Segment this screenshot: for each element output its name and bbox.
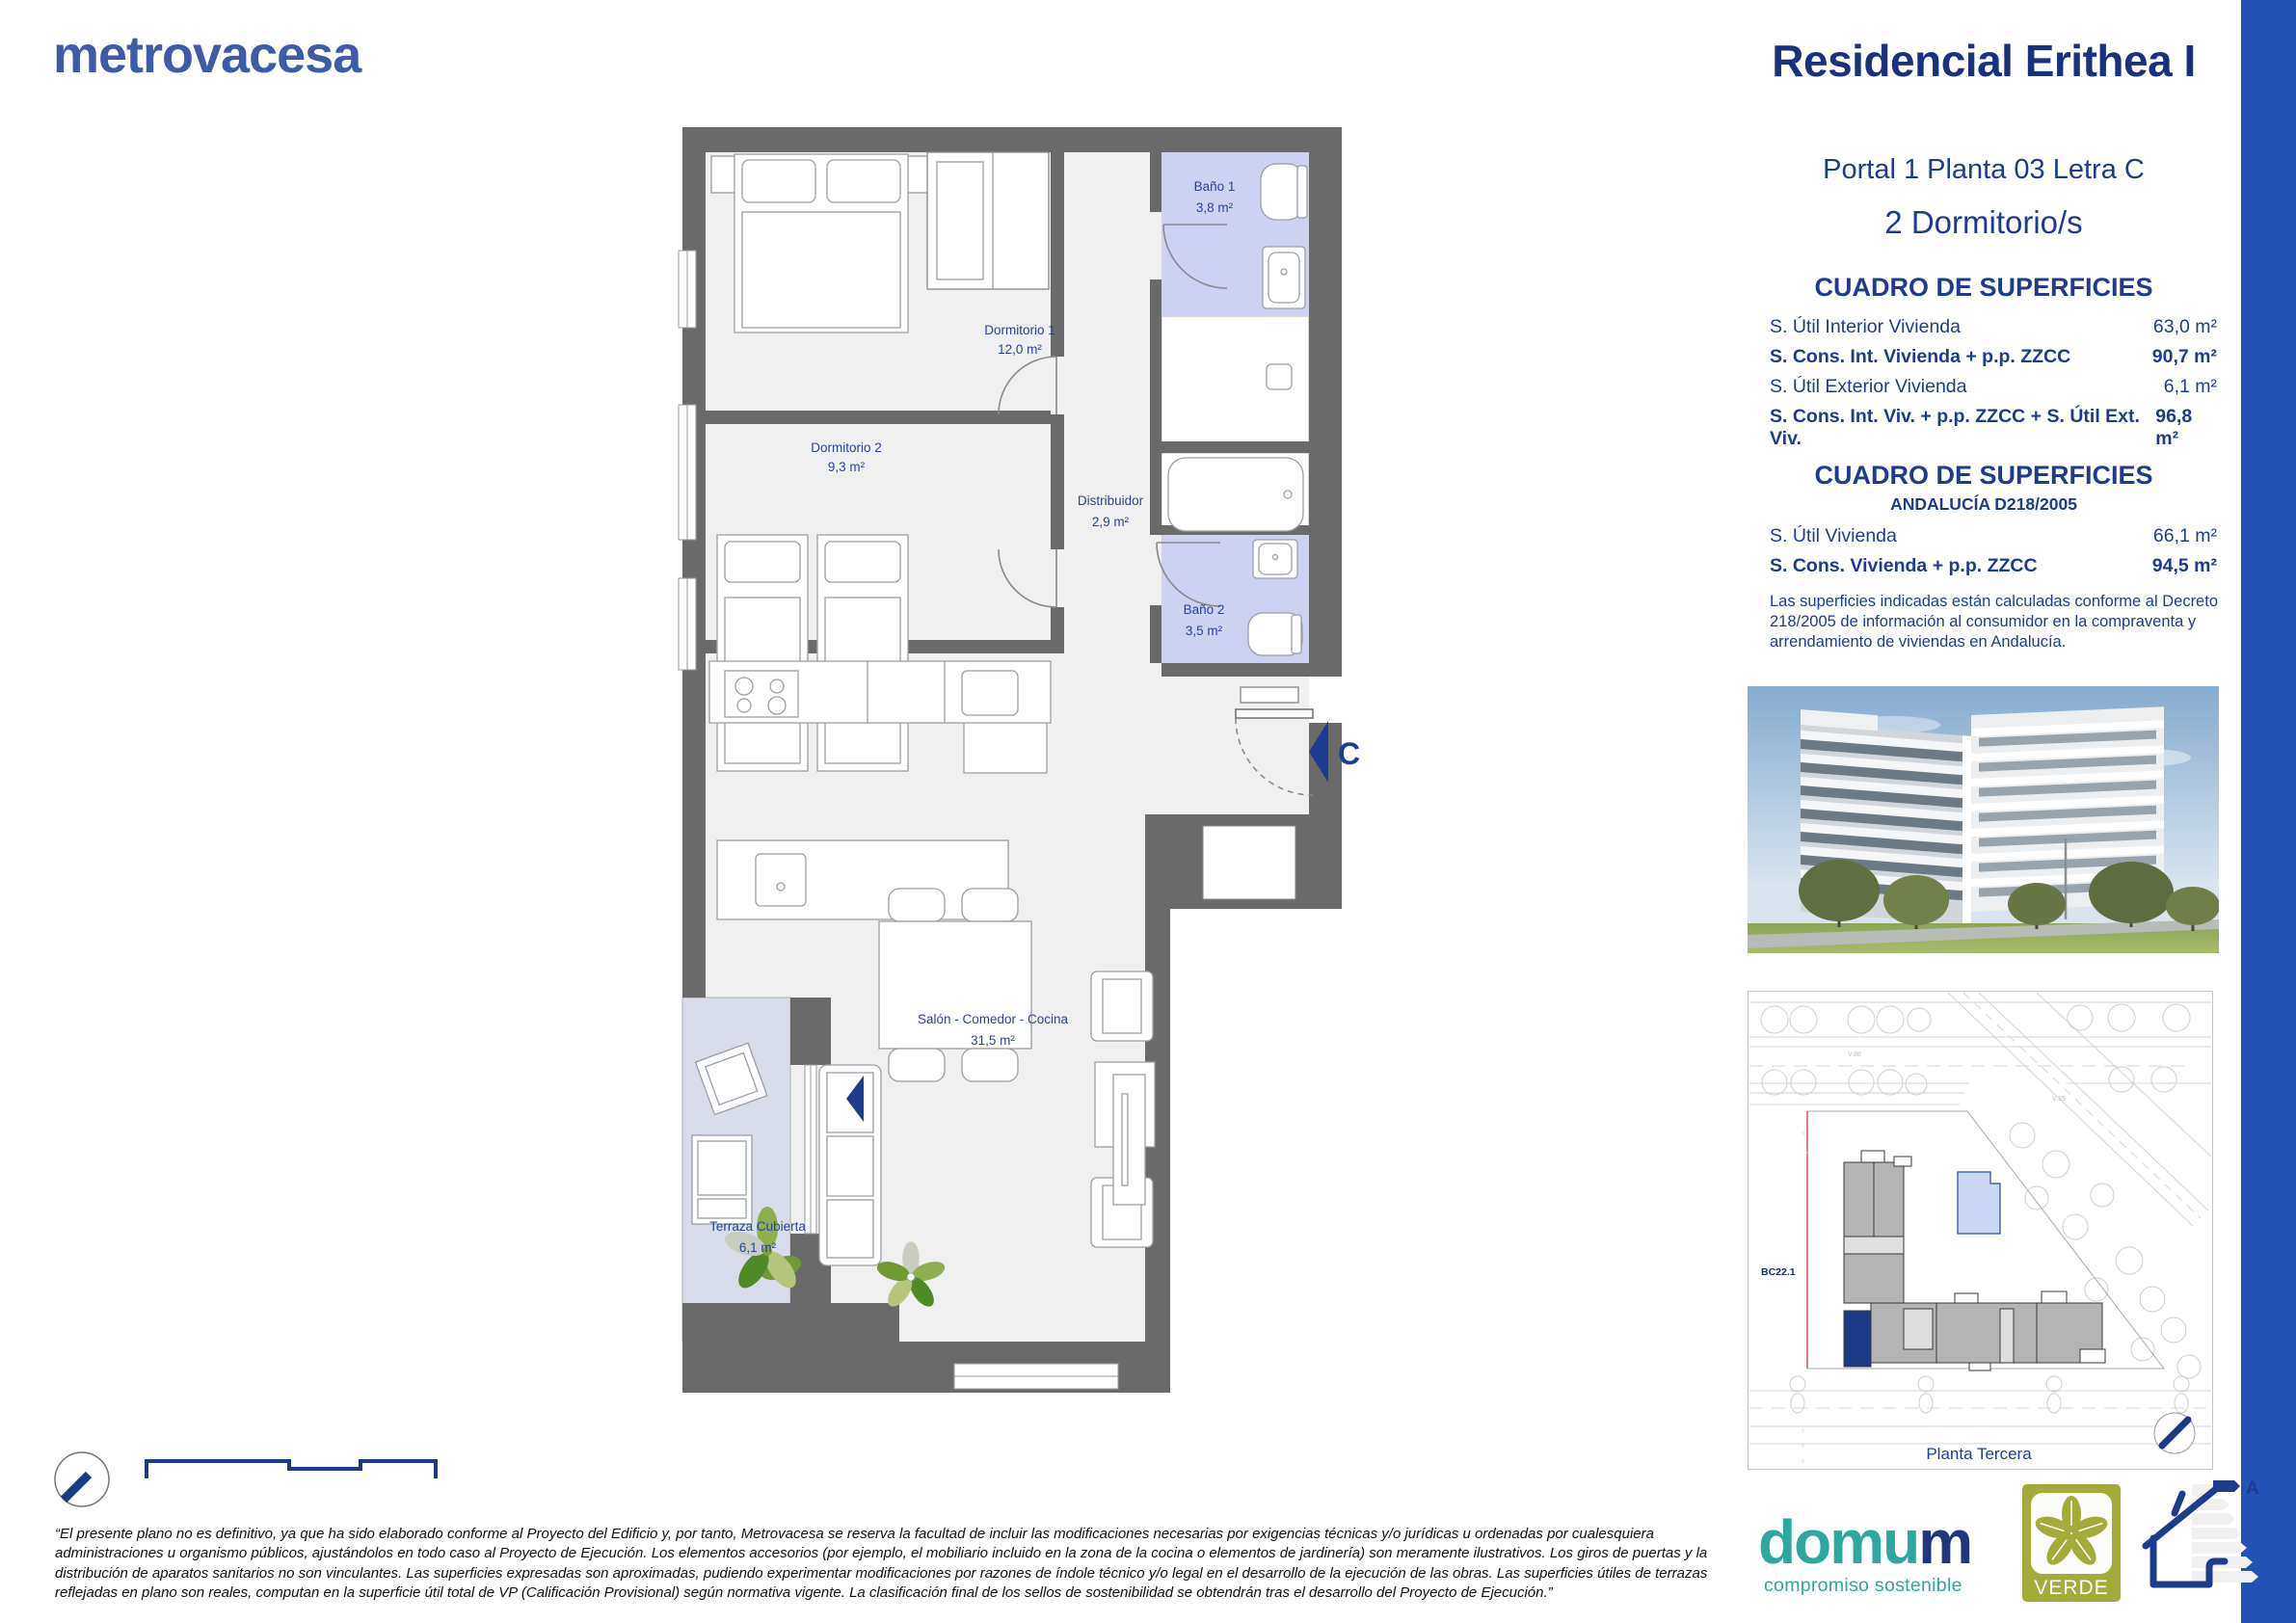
single-bed: [817, 535, 908, 771]
svg-text:‹: ‹: [1802, 1424, 1804, 1434]
road-label: V.15: [2052, 1096, 2066, 1103]
site-plan: V.88 V.15 BC22.1: [1748, 991, 2213, 1470]
svg-text:›: ›: [1805, 1147, 1808, 1157]
room-area: 3,8 m²: [1196, 200, 1234, 215]
scale-bar: [143, 1451, 441, 1490]
entry-closet: [1203, 826, 1295, 899]
row-label: S. Útil Exterior Vivienda: [1770, 376, 1966, 398]
kitchen-counter: [709, 661, 1051, 723]
sink: [1263, 247, 1305, 308]
site-compass: [2154, 1413, 2195, 1453]
sink: [1253, 540, 1297, 578]
entrance-label: C: [1338, 736, 1360, 771]
terrace-lounger: [692, 1135, 752, 1224]
room-name: Dormitorio 2: [811, 440, 882, 455]
row-label: S. Útil Vivienda: [1770, 525, 1897, 547]
row-label: S. Cons. Vivienda + p.p. ZZCC: [1770, 555, 2038, 577]
room-name: Terraza Cubierta: [709, 1219, 806, 1234]
svg-text:‹: ‹: [1802, 1128, 1804, 1137]
table-row: S. Cons. Int. Vivienda + p.p. ZZCC 90,7 …: [1747, 346, 2221, 376]
room-name: Baño 1: [1194, 179, 1236, 194]
energy-rating-icon: A: [2132, 1475, 2265, 1602]
verde-label: VERDE: [2034, 1577, 2108, 1599]
side-accent-bar: [2241, 0, 2296, 1623]
decree-note: Las superficies indicadas están calculad…: [1770, 592, 2221, 652]
row-value: 94,5 m²: [2152, 555, 2217, 577]
svg-text:‹: ‹: [1802, 1440, 1804, 1450]
row-value: 63,0 m²: [2153, 316, 2217, 338]
surfaces-andalucia-table: S. Útil Vivienda 66,1 m² S. Cons. Vivien…: [1747, 525, 2221, 585]
room-area: 6,1 m²: [739, 1240, 777, 1255]
surfaces-andalucia-subtitle: ANDALUCÍA D218/2005: [1747, 494, 2221, 515]
room-name: Dormitorio 1: [984, 323, 1055, 337]
north-compass: [50, 1448, 114, 1511]
energy-rating-label: A: [2246, 1478, 2259, 1499]
table-row: S. Útil Interior Vivienda 63,0 m²: [1747, 316, 2221, 346]
room-area: 2,9 m²: [1092, 515, 1130, 529]
surfaces-table: S. Útil Interior Vivienda 63,0 m² S. Con…: [1747, 316, 2221, 436]
table-row: S. Cons. Vivienda + p.p. ZZCC 94,5 m²: [1747, 555, 2221, 585]
toilet: [1248, 613, 1302, 655]
domum-word: domu: [1758, 1507, 1918, 1577]
floor-plan: C Dormitorio 1 12,0 m² Dormitorio 2 9,3 …: [675, 125, 1369, 1397]
unit-location: Portal 1 Planta 03 Letra C: [1747, 154, 2221, 186]
building-photo: [1748, 686, 2219, 953]
room-area: 3,5 m²: [1186, 624, 1223, 638]
double-bed: [711, 154, 931, 333]
domum-logo: domum compromiso sostenible: [1758, 1511, 2018, 1596]
single-bed: [717, 535, 808, 771]
plan-sheet: metrovacesa Residencial Erithea I Portal…: [0, 0, 2296, 1623]
table-row: S. Útil Exterior Vivienda 6,1 m²: [1747, 376, 2221, 406]
row-value: 6,1 m²: [2164, 376, 2217, 398]
room-name: Distribuidor: [1078, 493, 1144, 508]
tv-unit: [1113, 1075, 1145, 1205]
legal-disclaimer: “El presente plano no es definitivo, ya …: [55, 1525, 1732, 1604]
row-value: 66,1 m²: [2153, 525, 2217, 547]
rating-arrow: [2213, 1480, 2240, 1492]
stove: [725, 671, 798, 717]
row-value: 90,7 m²: [2152, 346, 2217, 368]
row-label: S. Cons. Int. Vivienda + p.p. ZZCC: [1770, 346, 2070, 368]
page-title: Residencial Erithea I: [1747, 35, 2221, 87]
row-label: S. Útil Interior Vivienda: [1770, 316, 1961, 338]
highlighted-unit: [1844, 1311, 1871, 1367]
table-row: S. Cons. Int. Viv. + p.p. ZZCC + S. Útil…: [1747, 406, 2221, 436]
table-row: S. Útil Vivienda 66,1 m²: [1747, 525, 2221, 555]
shower-drain: [1267, 364, 1292, 389]
row-label: S. Cons. Int. Viv. + p.p. ZZCC + S. Útil…: [1770, 406, 2155, 450]
toilet: [1261, 164, 1307, 220]
room-area: 12,0 m²: [998, 342, 1042, 357]
svg-text:‹: ‹: [1802, 1455, 1804, 1465]
bathtub: [1168, 458, 1303, 531]
room-name: Salón - Comedor - Cocina: [918, 1012, 1069, 1026]
room-area: 31,5 m²: [971, 1033, 1015, 1048]
armchair: [1091, 971, 1153, 1041]
row-value: 96,8 m²: [2155, 406, 2217, 450]
room-area: 9,3 m²: [828, 460, 866, 474]
domum-tagline: compromiso sostenible: [1764, 1577, 2018, 1596]
wardrobe: [927, 152, 1049, 289]
road-label: V.88: [1848, 1051, 1861, 1058]
bedroom-count: 2 Dormitorio/s: [1747, 204, 2221, 241]
room-name: Baño 2: [1184, 602, 1225, 617]
siteplan-caption: Planta Tercera: [1926, 1445, 2032, 1463]
surfaces-table-title: CUADRO DE SUPERFICIES: [1747, 273, 2221, 303]
metrovacesa-logo: metrovacesa: [53, 25, 360, 85]
surfaces-andalucia-title: CUADRO DE SUPERFICIES: [1747, 461, 2221, 491]
parcel-label: BC22.1: [1761, 1266, 1796, 1278]
verde-certification-logo: VERDE: [2022, 1484, 2121, 1602]
